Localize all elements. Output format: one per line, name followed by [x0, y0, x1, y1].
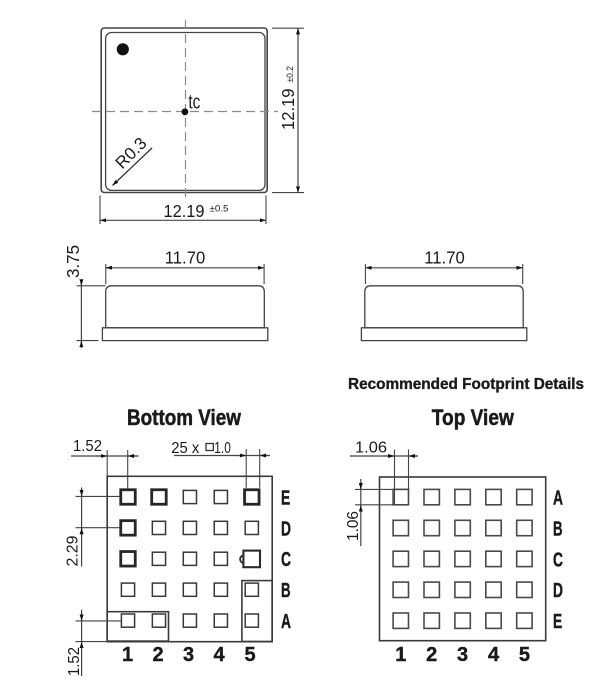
svg-text:A: A [281, 611, 291, 633]
svg-text:B: B [281, 580, 291, 602]
svg-text:C: C [281, 549, 291, 571]
svg-text:1: 1 [122, 644, 133, 666]
svg-text:2.29: 2.29 [65, 535, 82, 566]
svg-text:3: 3 [183, 644, 194, 666]
svg-text:D: D [281, 518, 291, 540]
svg-text:A: A [553, 488, 563, 510]
svg-text:12.19: 12.19 [278, 89, 298, 131]
svg-text:B: B [553, 518, 563, 540]
svg-text:D: D [553, 580, 563, 602]
svg-text:5: 5 [519, 644, 530, 666]
svg-text:2: 2 [152, 644, 163, 666]
svg-text:Top View: Top View [432, 405, 514, 430]
svg-text:11.70: 11.70 [165, 248, 206, 268]
svg-text:1.52: 1.52 [73, 438, 102, 455]
svg-text:tc: tc [188, 92, 200, 114]
svg-text:11.70: 11.70 [424, 248, 465, 268]
svg-text:±0.2: ±0.2 [285, 66, 296, 83]
svg-text:5: 5 [244, 644, 255, 666]
svg-text:E: E [553, 611, 562, 633]
svg-text:12.19: 12.19 [164, 201, 205, 221]
svg-text:2: 2 [426, 644, 437, 666]
svg-text:Bottom View: Bottom View [127, 405, 241, 430]
svg-text:C: C [553, 549, 563, 571]
svg-text:4: 4 [488, 644, 500, 666]
svg-text:±0.5: ±0.5 [210, 204, 229, 215]
svg-text:1: 1 [395, 644, 406, 666]
svg-text:1.52: 1.52 [66, 647, 83, 676]
svg-text:1.06: 1.06 [345, 511, 362, 541]
svg-text:1.0: 1.0 [214, 440, 231, 457]
svg-text:25 x: 25 x [171, 440, 199, 457]
svg-text:Recommended Footprint Details: Recommended Footprint Details [348, 376, 584, 393]
svg-text:4: 4 [213, 644, 225, 666]
svg-text:3: 3 [457, 644, 468, 666]
svg-text:E: E [281, 487, 290, 509]
svg-text:1.06: 1.06 [355, 440, 387, 457]
svg-text:3.75: 3.75 [63, 245, 83, 278]
